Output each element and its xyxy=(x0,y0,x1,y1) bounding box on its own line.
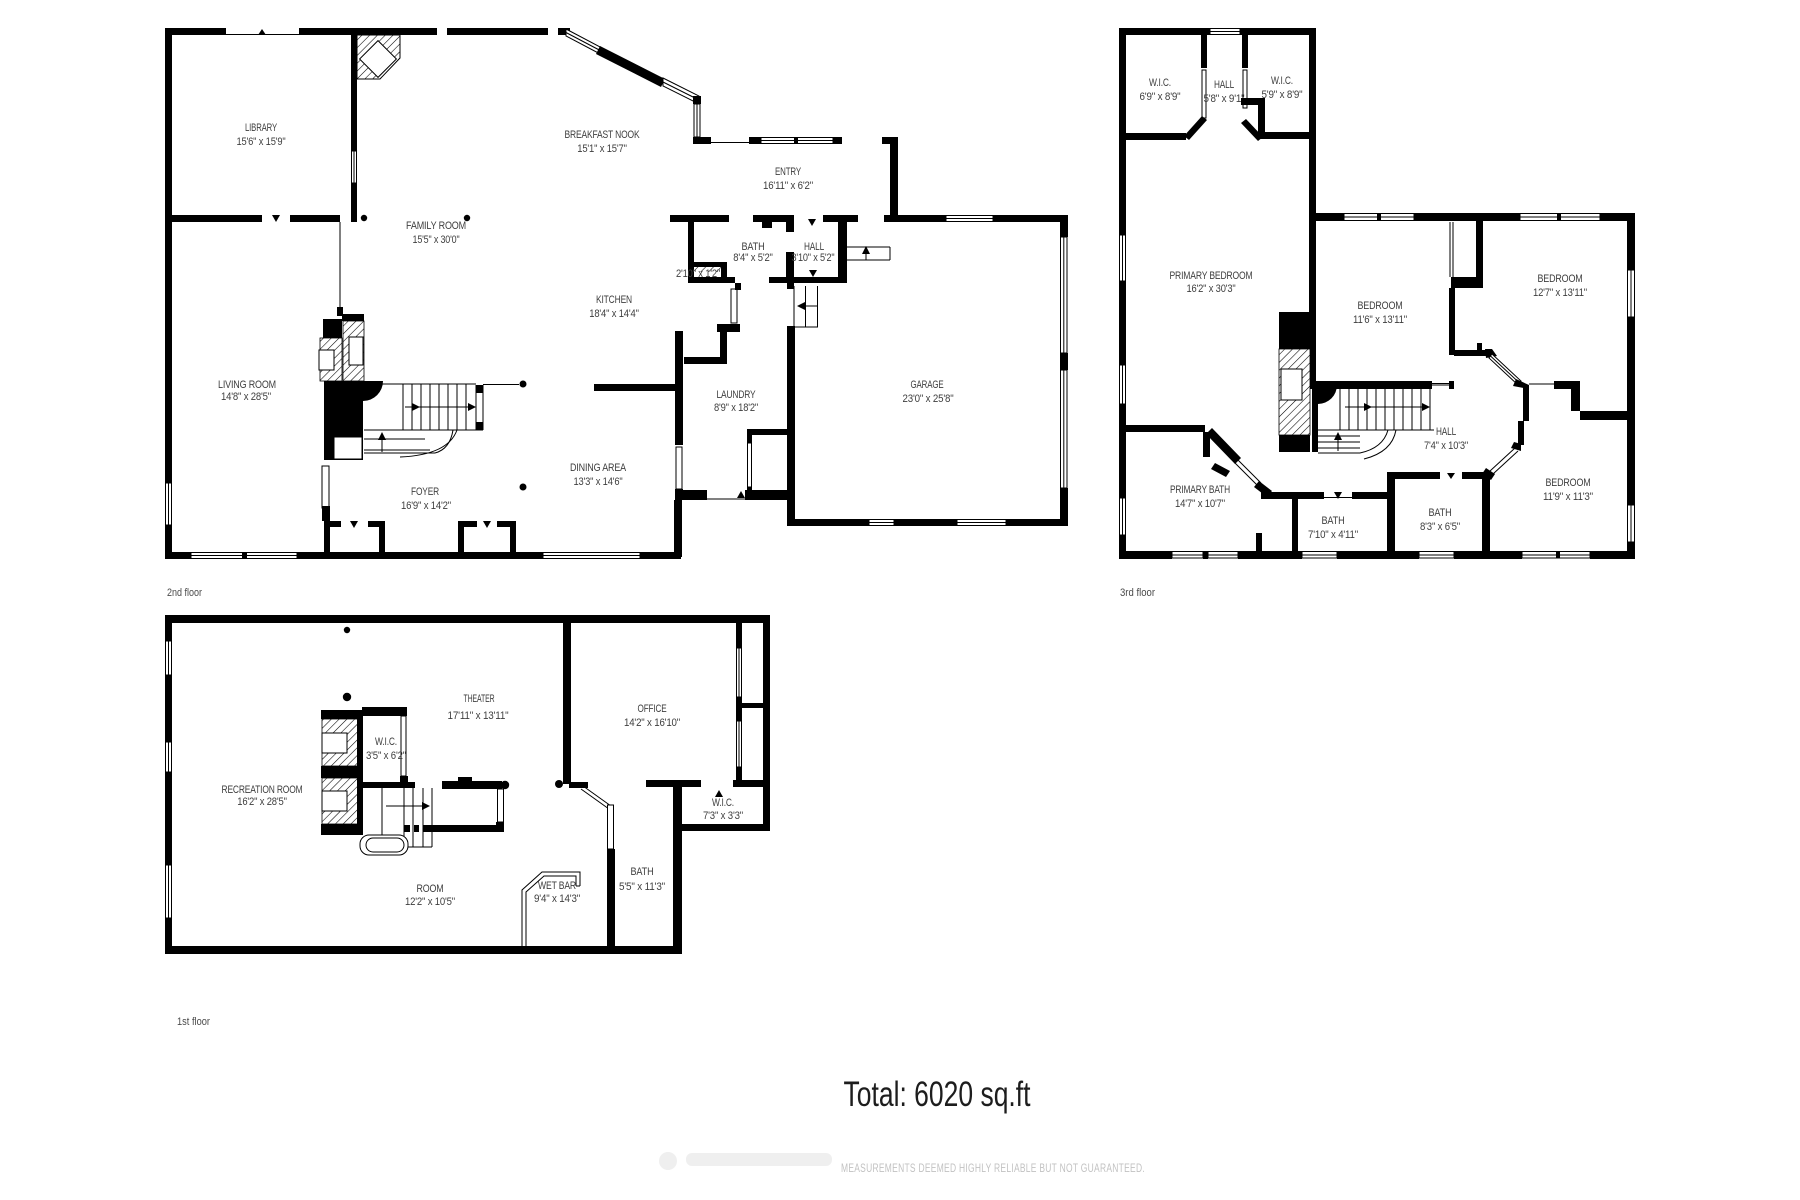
svg-text:7'3" x 3'3": 7'3" x 3'3" xyxy=(703,810,743,822)
svg-text:W.I.C.: W.I.C. xyxy=(1271,75,1293,87)
svg-text:3rd floor: 3rd floor xyxy=(1120,587,1155,599)
svg-text:5'9" x 8'9": 5'9" x 8'9" xyxy=(1262,89,1303,101)
svg-text:8'4" x 5'2": 8'4" x 5'2" xyxy=(733,252,773,264)
svg-text:HALL: HALL xyxy=(1214,79,1234,91)
svg-text:BREAKFAST NOOK: BREAKFAST NOOK xyxy=(565,129,641,141)
svg-text:16'9" x 14'2": 16'9" x 14'2" xyxy=(401,500,451,512)
svg-text:1st floor: 1st floor xyxy=(177,1016,210,1028)
svg-text:FAMILY ROOM: FAMILY ROOM xyxy=(406,220,466,232)
svg-text:15'6" x 15'9": 15'6" x 15'9" xyxy=(237,136,286,148)
svg-text:ROOM: ROOM xyxy=(417,883,444,895)
svg-text:BATH: BATH xyxy=(1322,515,1345,527)
svg-text:14'2" x 16'10": 14'2" x 16'10" xyxy=(624,717,680,729)
svg-text:23'0" x 25'8": 23'0" x 25'8" xyxy=(903,393,954,405)
svg-text:LIBRARY: LIBRARY xyxy=(245,122,278,134)
svg-text:BEDROOM: BEDROOM xyxy=(1546,477,1591,489)
svg-text:14'7" x 10'7": 14'7" x 10'7" xyxy=(1175,498,1225,510)
svg-text:LIVING ROOM: LIVING ROOM xyxy=(218,379,276,391)
svg-text:15'5" x 30'0": 15'5" x 30'0" xyxy=(413,234,460,246)
svg-text:BEDROOM: BEDROOM xyxy=(1358,300,1403,312)
svg-text:BATH: BATH xyxy=(631,866,654,878)
svg-text:Total: 6020 sq.ft: Total: 6020 sq.ft xyxy=(844,1075,1031,1114)
svg-text:14'8" x 28'5": 14'8" x 28'5" xyxy=(221,391,271,403)
svg-text:5'5" x 11'3": 5'5" x 11'3" xyxy=(619,881,665,893)
svg-text:7'10" x 4'11": 7'10" x 4'11" xyxy=(1308,529,1358,541)
svg-text:16'2" x 30'3": 16'2" x 30'3" xyxy=(1187,283,1236,295)
svg-text:W.I.C.: W.I.C. xyxy=(712,797,734,809)
svg-text:GARAGE: GARAGE xyxy=(911,379,944,391)
svg-text:11'6" x 13'11": 11'6" x 13'11" xyxy=(1353,314,1407,326)
svg-text:3'10" x 5'2": 3'10" x 5'2" xyxy=(792,252,835,264)
svg-text:W.I.C.: W.I.C. xyxy=(375,736,397,748)
svg-text:FOYER: FOYER xyxy=(411,486,439,498)
svg-text:PRIMARY BEDROOM: PRIMARY BEDROOM xyxy=(1170,270,1253,282)
svg-text:16'11" x 6'2": 16'11" x 6'2" xyxy=(763,180,813,192)
svg-text:2'10" x 1'2": 2'10" x 1'2" xyxy=(676,268,720,280)
svg-text:18'4" x 14'4": 18'4" x 14'4" xyxy=(589,308,639,320)
svg-text:5'8" x 9'1": 5'8" x 9'1" xyxy=(1204,93,1245,105)
svg-text:15'1" x 15'7": 15'1" x 15'7" xyxy=(577,143,627,155)
svg-text:DINING AREA: DINING AREA xyxy=(570,462,627,474)
svg-text:9'4" x 14'3": 9'4" x 14'3" xyxy=(534,893,580,905)
svg-text:12'2" x 10'5": 12'2" x 10'5" xyxy=(405,896,455,908)
svg-text:11'9" x 11'3": 11'9" x 11'3" xyxy=(1543,491,1593,503)
svg-text:13'3" x 14'6": 13'3" x 14'6" xyxy=(574,476,623,488)
svg-text:HALL: HALL xyxy=(1436,426,1456,438)
svg-text:BATH: BATH xyxy=(1429,507,1452,519)
svg-text:LAUNDRY: LAUNDRY xyxy=(717,389,757,401)
svg-text:8'9" x 18'2": 8'9" x 18'2" xyxy=(714,402,758,414)
svg-text:17'11" x 13'11": 17'11" x 13'11" xyxy=(448,710,509,722)
svg-text:THEATER: THEATER xyxy=(464,693,495,705)
svg-text:RECREATION ROOM: RECREATION ROOM xyxy=(222,784,303,796)
svg-text:6'9" x 8'9": 6'9" x 8'9" xyxy=(1140,91,1181,103)
svg-text:MEASUREMENTS DEEMED HIGHLY REL: MEASUREMENTS DEEMED HIGHLY RELIABLE BUT … xyxy=(841,1161,1145,1175)
svg-text:BEDROOM: BEDROOM xyxy=(1538,273,1583,285)
svg-text:WET BAR: WET BAR xyxy=(538,880,576,892)
svg-text:PRIMARY BATH: PRIMARY BATH xyxy=(1170,484,1230,496)
svg-text:7'4" x 10'3": 7'4" x 10'3" xyxy=(1424,440,1468,452)
svg-text:2nd floor: 2nd floor xyxy=(167,587,202,599)
svg-text:8'3" x 6'5": 8'3" x 6'5" xyxy=(1420,521,1460,533)
svg-text:KITCHEN: KITCHEN xyxy=(596,294,632,306)
svg-text:OFFICE: OFFICE xyxy=(638,703,667,715)
svg-text:12'7" x 13'11": 12'7" x 13'11" xyxy=(1533,287,1587,299)
svg-text:3'5" x 6'2": 3'5" x 6'2" xyxy=(366,750,406,762)
svg-text:16'2" x 28'5": 16'2" x 28'5" xyxy=(237,796,287,808)
svg-text:W.I.C.: W.I.C. xyxy=(1149,77,1171,89)
svg-text:ENTRY: ENTRY xyxy=(775,166,802,178)
